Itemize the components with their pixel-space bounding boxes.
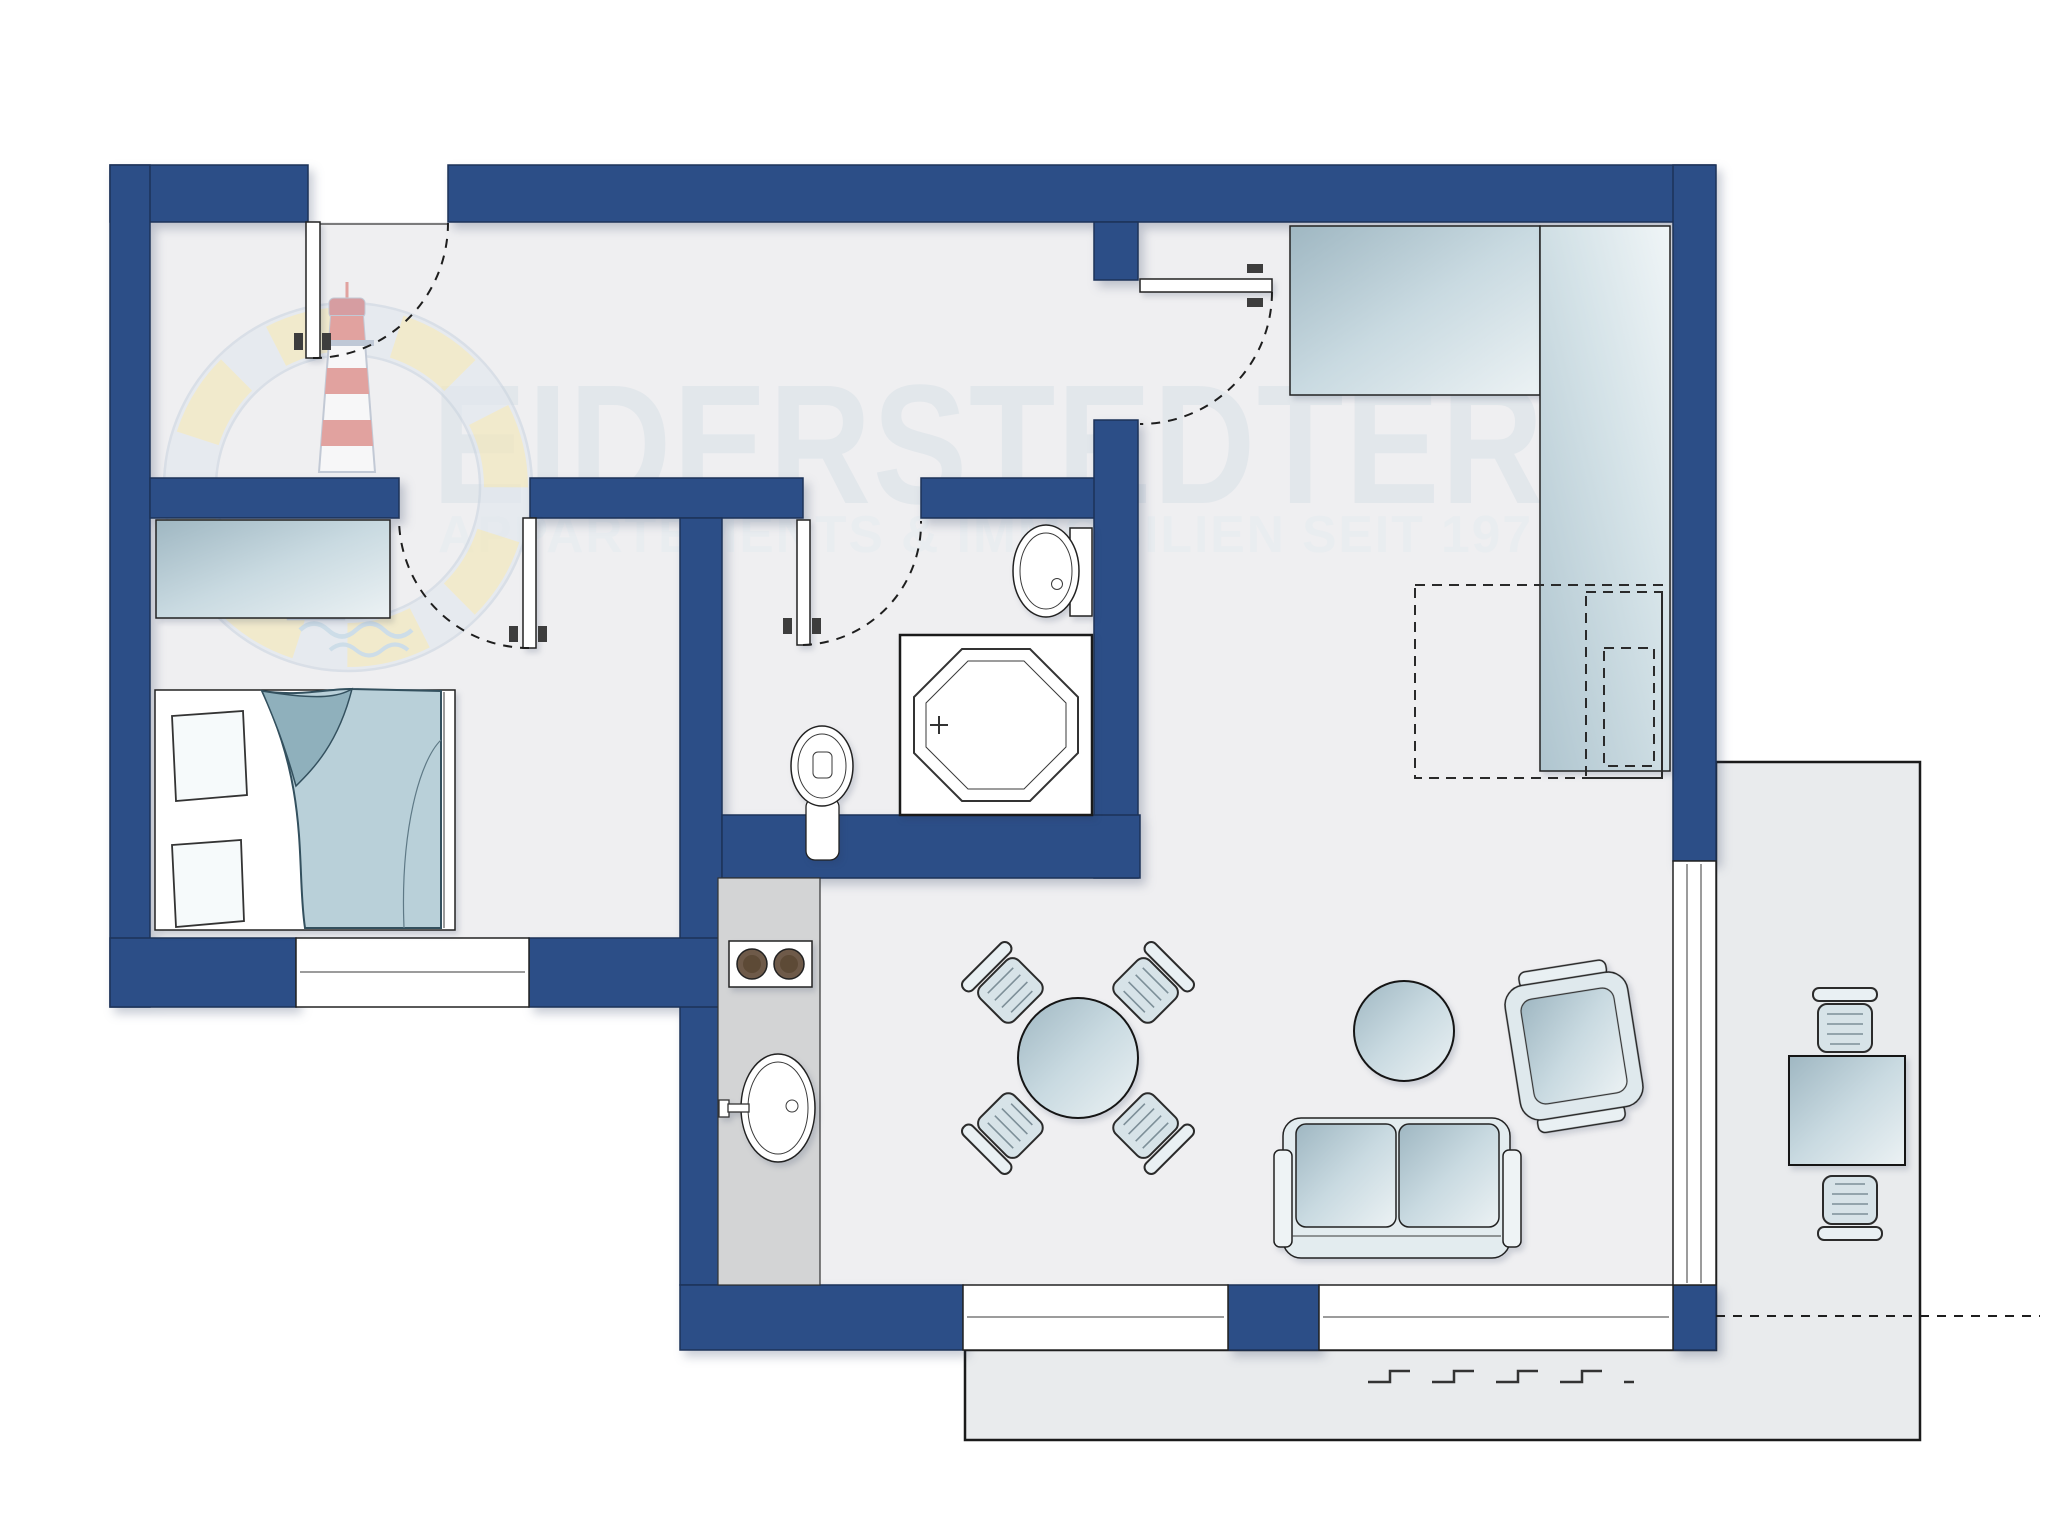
wall-bedroom-bottom-a (110, 938, 296, 1007)
wall-bedroom-bottom-b (529, 938, 722, 1007)
wall-bathroom-bottom (722, 815, 1140, 878)
sofa (1274, 1118, 1521, 1258)
bedroom-window (296, 938, 529, 1007)
stove (729, 941, 812, 987)
terrace-chair-bottom (1818, 1176, 1882, 1240)
wall-kitchen-left (680, 518, 722, 1285)
wall-hall-stub (1094, 222, 1138, 280)
bedroom-dresser (156, 520, 390, 618)
sofa-armrest-left (1274, 1150, 1292, 1247)
wall-top-right (448, 165, 1715, 222)
wall-bottom-corner (1673, 1285, 1716, 1350)
wall-hall-living (1094, 420, 1138, 878)
terrace-table (1789, 1056, 1905, 1165)
floor-plan: EIDERSTEDTER APPARTEMENTS & IMMOBILIEN S… (0, 0, 2048, 1538)
dining-table (1018, 998, 1138, 1118)
wall-left (110, 165, 150, 1007)
shower (900, 635, 1092, 815)
pillow-1 (172, 711, 247, 801)
pillow-2 (172, 840, 244, 927)
side-table (1354, 981, 1454, 1081)
terrace-sliding-door (1673, 861, 1716, 1285)
living-window-1 (963, 1285, 1228, 1350)
washbasin (1013, 525, 1092, 617)
wall-right (1673, 165, 1716, 861)
living-window-2 (1319, 1285, 1673, 1350)
wall-bathroom-top (921, 478, 1100, 518)
wall-bottom-pier (1228, 1285, 1319, 1350)
terrace-chair-top (1813, 988, 1877, 1052)
wall-bedroom-top-a (150, 478, 399, 518)
wall-bottom-kitchen (680, 1285, 963, 1350)
bed (155, 689, 455, 930)
wall-bedroom-top-b (530, 478, 803, 518)
kitchen (718, 878, 820, 1285)
sofa-armrest-right (1503, 1150, 1521, 1247)
wardrobe-wide (1290, 226, 1540, 395)
